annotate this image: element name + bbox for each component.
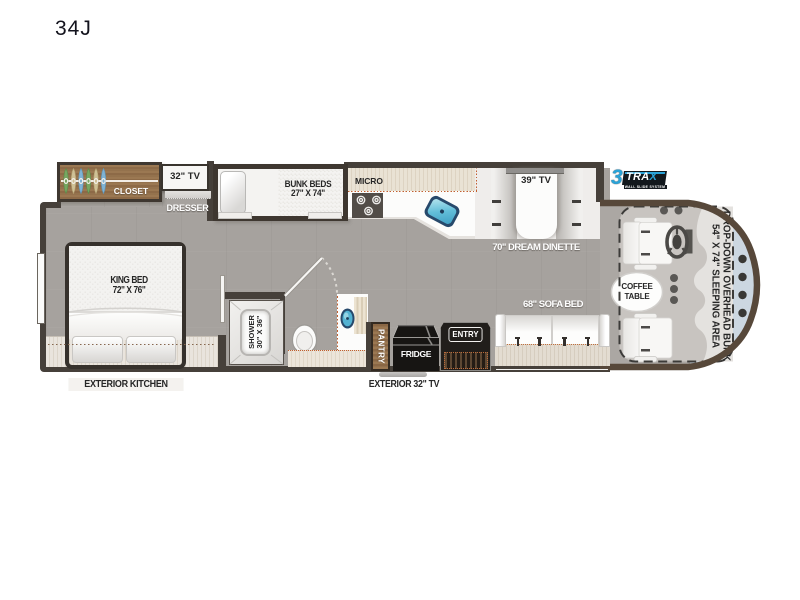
svg-text:54" X 74" SLEEPING AREA: 54" X 74" SLEEPING AREA <box>710 224 721 348</box>
svg-text:DROP-DOWN OVERHEAD BUNK: DROP-DOWN OVERHEAD BUNK <box>721 211 732 361</box>
